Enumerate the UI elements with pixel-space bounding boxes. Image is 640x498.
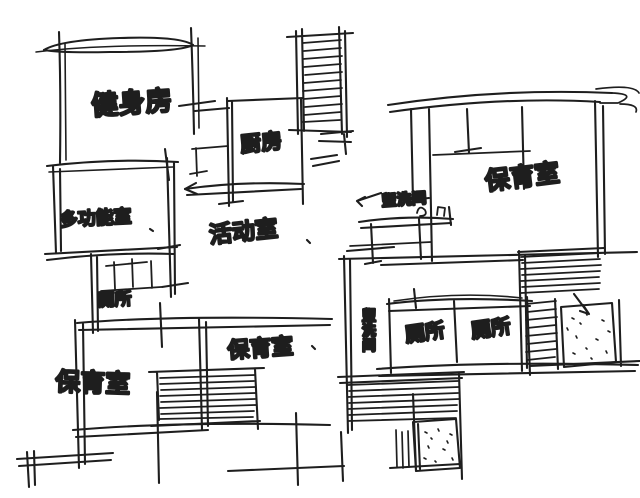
wall-line	[77, 318, 332, 330]
door-mark	[190, 146, 228, 176]
pool-dots	[424, 429, 453, 462]
room-toilets-center: 厕所 厕所 盥洗间	[347, 247, 638, 376]
stair-steps	[348, 381, 459, 421]
pen-dot	[312, 346, 315, 349]
wall-tick	[311, 155, 339, 166]
room-label-multi-function: 多功能室	[59, 205, 132, 231]
wall-line	[595, 101, 605, 257]
room-activity: 活动室	[208, 215, 310, 249]
sketch-canvas: 健身房 厨房 多功能室 活动室	[0, 0, 640, 498]
wall-line	[429, 109, 432, 261]
room-nursery-right: 保育室	[339, 87, 639, 265]
floorplan-sketch: 健身房 厨房 多功能室 活动室	[0, 0, 640, 498]
pen-dot	[150, 229, 153, 231]
room-label-nursery-right: 保育室	[482, 158, 561, 196]
wall-line	[191, 28, 194, 134]
hatch-small	[396, 430, 409, 468]
shelf-line	[350, 242, 431, 246]
staircase-lower-center	[338, 372, 464, 479]
stair-steps	[303, 40, 342, 122]
wall-line	[227, 98, 233, 206]
pool-dots	[567, 313, 610, 359]
wall-line	[390, 100, 600, 112]
wall-line	[195, 98, 303, 111]
wall-line	[198, 38, 199, 128]
stair-steps	[526, 301, 557, 360]
stair-steps	[521, 253, 601, 293]
wall-tick	[158, 245, 188, 287]
wall-line	[341, 256, 352, 481]
wall-line	[47, 161, 178, 166]
counter-leg	[365, 207, 451, 264]
wall-line	[167, 158, 175, 297]
room-label-toilet-left: 厕所	[97, 289, 132, 311]
sand-pool-lower-right	[530, 294, 640, 367]
wall-line	[65, 44, 66, 160]
washstand-counter	[359, 218, 453, 228]
wall-tick	[219, 201, 243, 204]
room-label-activity: 活动室	[208, 215, 279, 249]
staircase-top	[287, 27, 353, 154]
wall-tick	[179, 101, 215, 106]
wall-line	[387, 299, 532, 311]
room-multi-function: 多功能室	[45, 158, 188, 297]
pen-dot	[307, 240, 310, 243]
wall-line	[388, 92, 612, 105]
room-label-washroom-lower: 盥洗间	[360, 307, 376, 353]
room-label-toilet-center-right: 厕所	[469, 314, 512, 343]
wall-line	[399, 109, 429, 201]
wall-line	[17, 451, 113, 487]
wall-line	[49, 167, 173, 172]
wall-line	[59, 32, 60, 163]
room-label-nursery-lower-center: 保育室	[226, 333, 295, 364]
toilet-fixture-icon	[101, 259, 161, 291]
wall-line	[455, 109, 481, 153]
room-label-toilet-center-left: 厕所	[403, 318, 446, 347]
room-label-kitchen: 厨房	[239, 129, 283, 157]
washstand-area: 盥洗间	[350, 189, 453, 264]
wall-line	[185, 183, 304, 195]
room-label-nursery-lower-left: 保育室	[54, 367, 131, 399]
arrow-icon	[357, 193, 381, 206]
wall-line	[44, 38, 193, 50]
wall-line	[433, 151, 530, 155]
room-label-gym: 健身房	[90, 84, 173, 122]
room-gym: 健身房	[36, 28, 215, 180]
